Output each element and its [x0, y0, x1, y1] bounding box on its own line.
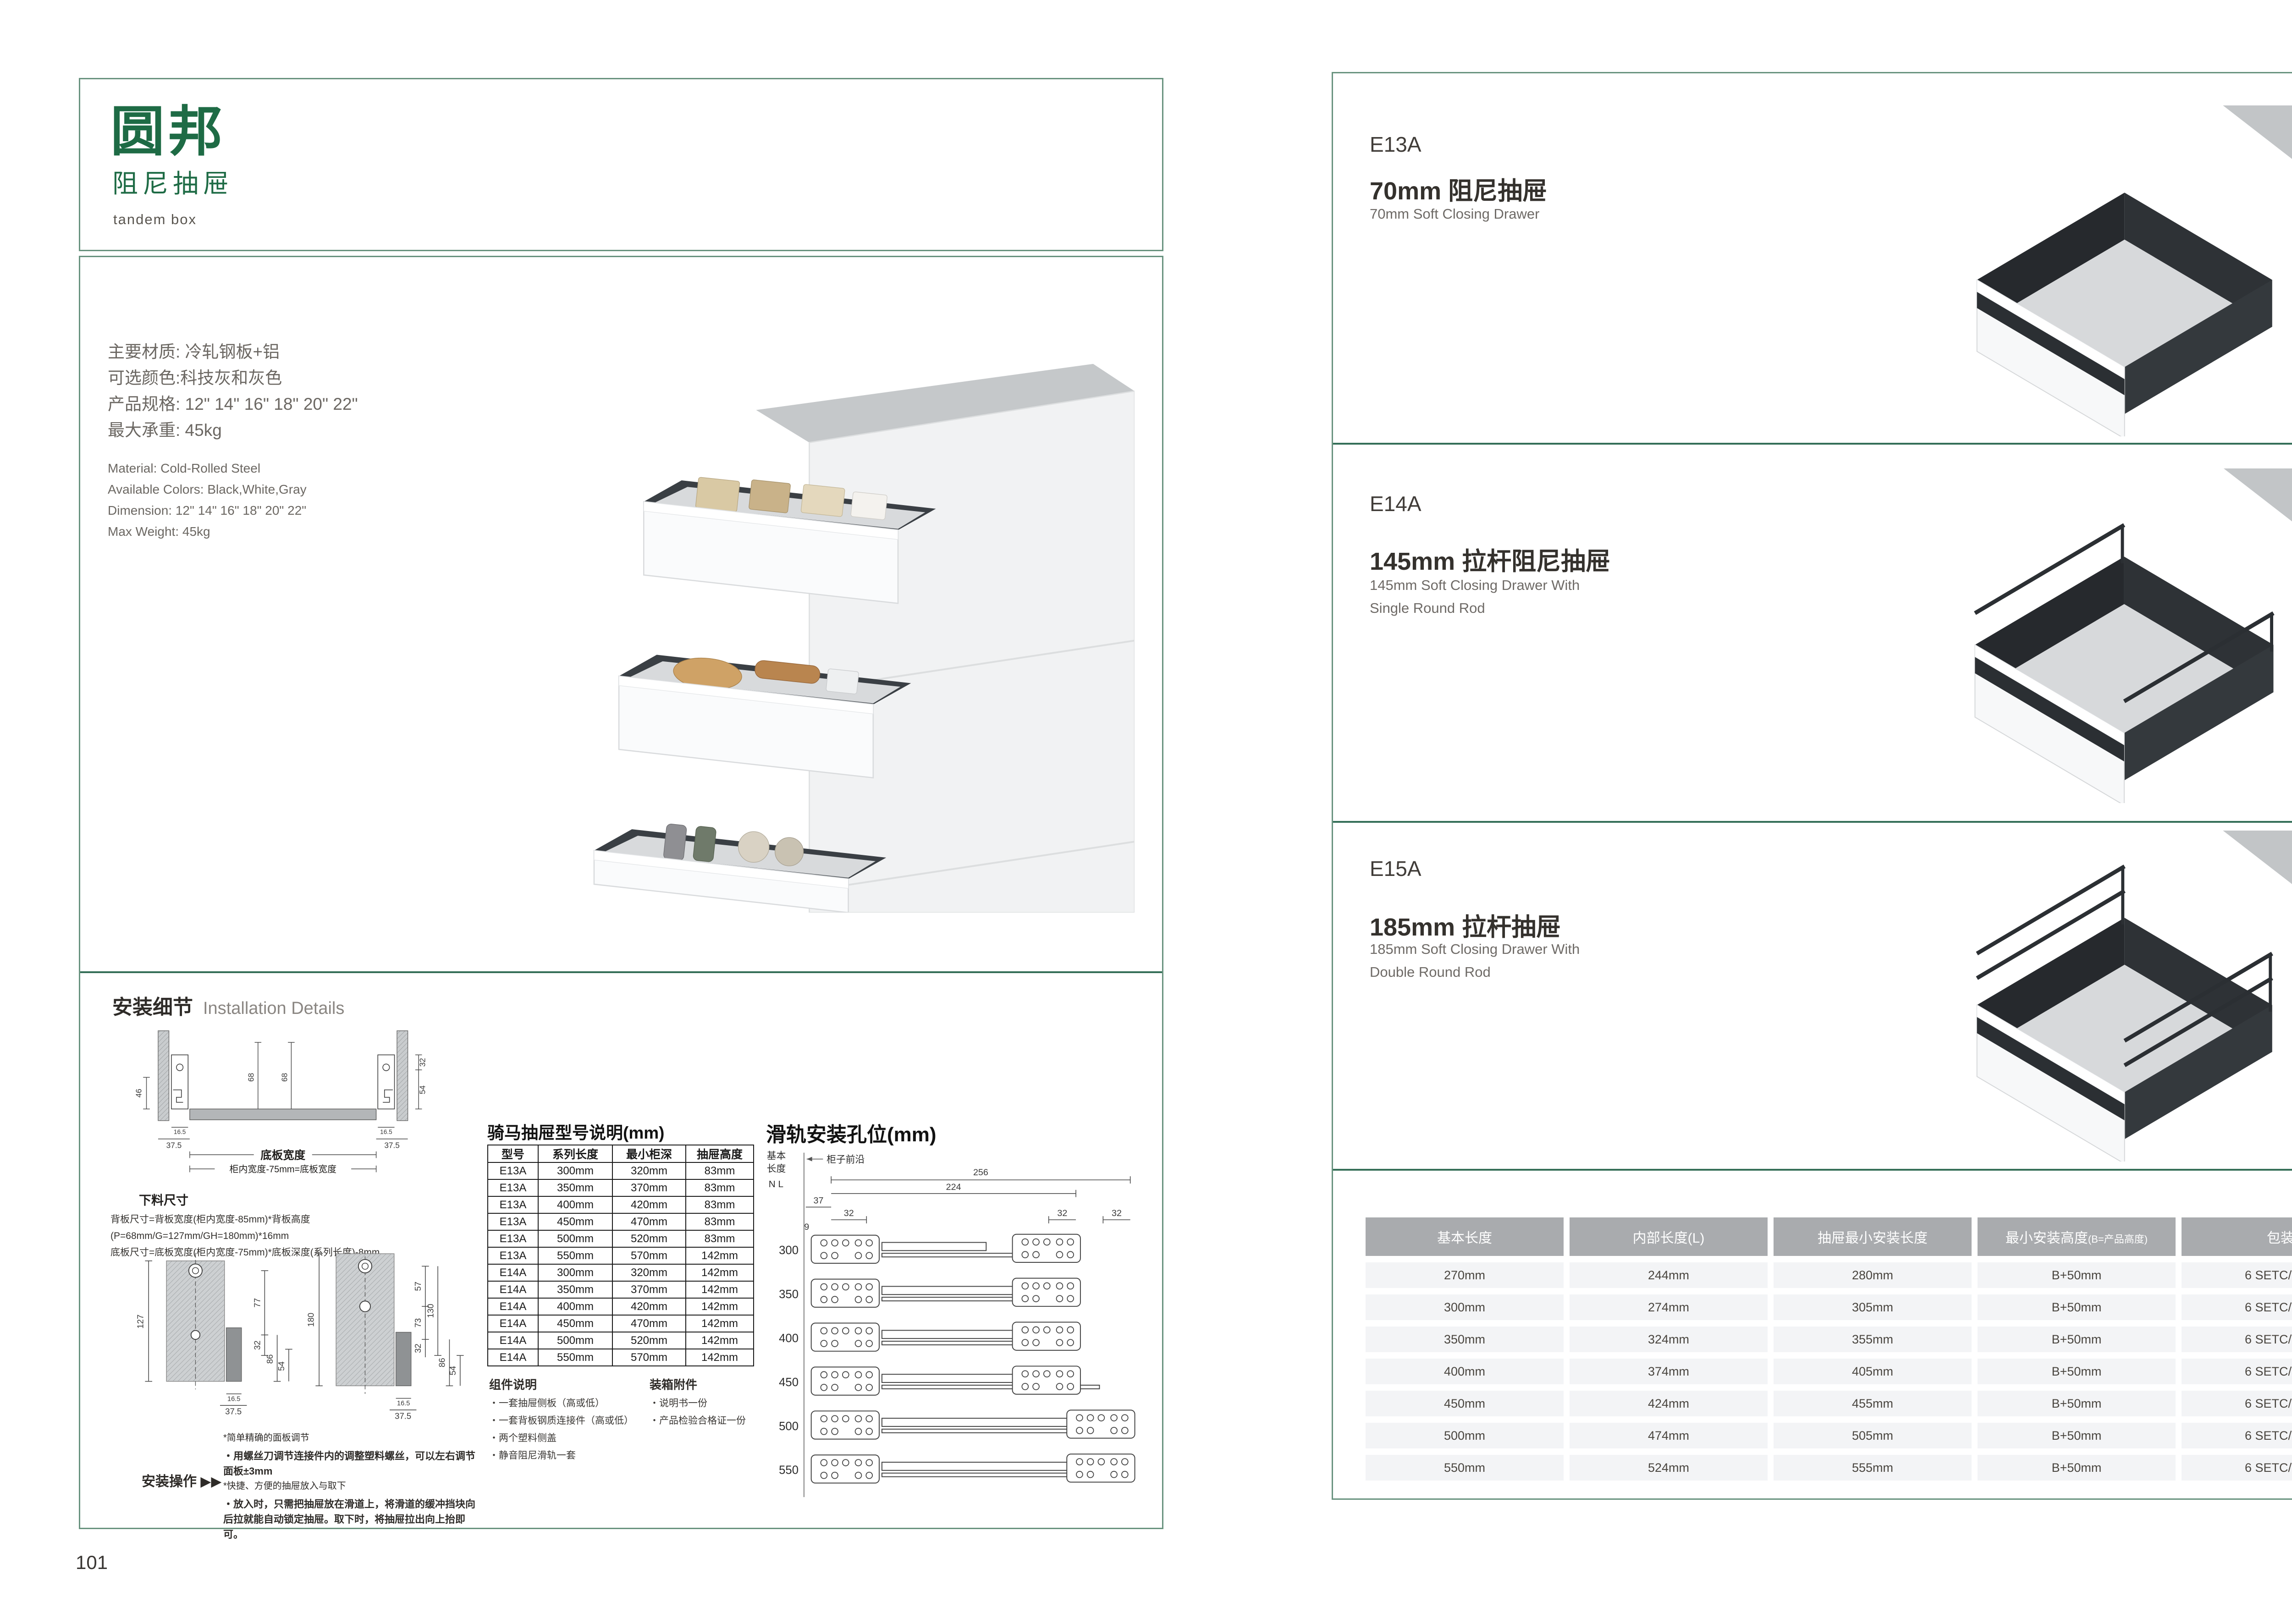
svg-text:400: 400	[779, 1332, 799, 1345]
svg-text:86: 86	[265, 1354, 275, 1364]
svg-text:16.5: 16.5	[380, 1129, 392, 1135]
product-photo	[543, 321, 1135, 913]
brand-logo: 圆邦	[110, 105, 226, 159]
component-item: ・两个塑料侧盖	[489, 1430, 654, 1447]
svg-text:256: 256	[973, 1167, 988, 1178]
svg-text:57: 57	[413, 1282, 423, 1291]
svg-text:350: 350	[779, 1288, 799, 1301]
svg-text:500: 500	[779, 1420, 799, 1433]
svg-text:长度: 长度	[767, 1163, 786, 1174]
svg-text:86: 86	[437, 1358, 447, 1367]
components-list: ・一套抽屉侧板（高或低）・一套背板钢质连接件（高或低）・两个塑料侧盖・静音阻尼滑…	[489, 1395, 654, 1464]
model-table-row: E14A 550mm 570mm 142mm	[488, 1349, 754, 1366]
install-title-cn: 安装细节	[112, 996, 193, 1018]
spec-line: 最大承重: 45kg	[108, 417, 520, 443]
product-image-e14a	[1904, 468, 2292, 803]
svg-text:300: 300	[779, 1244, 799, 1257]
svg-text:32: 32	[253, 1340, 262, 1350]
size-table-row: 450mm 424mm 455mm B+50mm 6 SETC/TNB	[1366, 1391, 2292, 1416]
size-table-header-row: 基本长度 内部长度(L) 抽屉最小安装长度 最小安装高度(B=产品高度) 包装	[1366, 1217, 2292, 1256]
svg-text:130: 130	[425, 1304, 435, 1318]
svg-text:77: 77	[253, 1298, 262, 1308]
spec-line: 产品规格: 12" 14" 16" 18" 20" 22"	[108, 391, 520, 417]
svg-text:16.5: 16.5	[227, 1395, 240, 1403]
operation-bullets: *简单精确的面板调节・用螺丝刀调节连接件内的调整塑料螺丝，可以左右调节面板±3m…	[223, 1431, 480, 1542]
svg-text:37.5: 37.5	[166, 1141, 182, 1150]
svg-text:127: 127	[136, 1315, 145, 1329]
left-content-box: 主要材质: 冷轧钢板+铝可选颜色:科技灰和灰色产品规格: 12" 14" 16"…	[79, 256, 1163, 1529]
operation-bullet: *简单精确的面板调节	[223, 1431, 480, 1446]
svg-text:柜内宽度-75mm=底板宽度: 柜内宽度-75mm=底板宽度	[229, 1164, 336, 1174]
spec-line: 可选颜色:科技灰和灰色	[108, 365, 520, 391]
spec-line: Available Colors: Black,White,Gray	[108, 479, 520, 500]
svg-text:N L: N L	[769, 1179, 783, 1189]
model-table-row: E14A 350mm 370mm 142mm	[488, 1281, 754, 1298]
model-table-row: E14A 300mm 320mm 142mm	[488, 1264, 754, 1281]
svg-text:550: 550	[779, 1464, 799, 1477]
svg-text:32: 32	[844, 1208, 854, 1218]
model-table-row: E14A 400mm 420mm 142mm	[488, 1298, 754, 1315]
page-number-left: 101	[76, 1552, 108, 1574]
product-title-e13a: 70mm 阻尼抽屉	[1370, 171, 1547, 207]
operation-bullet: ・用螺丝刀调节连接件内的调整塑料螺丝，可以左右调节面板±3mm	[223, 1448, 480, 1479]
product-code-e13a: E13A	[1370, 132, 1421, 157]
specs-chinese: 主要材质: 冷轧钢板+铝可选颜色:科技灰和灰色产品规格: 12" 14" 16"…	[108, 339, 520, 443]
svg-text:底板宽度: 底板宽度	[260, 1148, 305, 1162]
model-table-row: E13A 500mm 520mm 83mm	[488, 1230, 754, 1247]
model-table-row: E13A 450mm 470mm 83mm	[488, 1213, 754, 1230]
spec-line: Max Weight: 45kg	[108, 521, 520, 542]
double-arrow-icon: ▶▶	[200, 1474, 221, 1489]
svg-text:224: 224	[946, 1182, 961, 1192]
profile-diagrams: 127 77 32 86 54 16.5 37.5	[135, 1252, 474, 1431]
model-table-row: E13A 350mm 370mm 83mm	[488, 1179, 754, 1196]
size-table-row: 300mm 274mm 305mm B+50mm 6 SETC/TNB	[1366, 1294, 2292, 1320]
product-title-e14a: 145mm 拉杆阻尼抽屉	[1370, 541, 1610, 577]
spec-line: Material: Cold-Rolled Steel	[108, 458, 520, 479]
svg-text:9: 9	[804, 1222, 809, 1232]
separator-1	[1333, 443, 2292, 445]
component-item: ・一套抽屉侧板（高或低）	[489, 1395, 654, 1412]
separator-2	[1333, 821, 2292, 823]
components-title: 组件说明	[489, 1376, 537, 1393]
specs-english: Material: Cold-Rolled SteelAvailable Col…	[108, 458, 520, 542]
svg-text:54: 54	[448, 1366, 457, 1376]
svg-text:54: 54	[418, 1085, 427, 1095]
catalog-spread: 圆邦 阻尼抽屉 tandem box 主要材质: 冷轧钢板+铝可选颜色:科技灰和…	[0, 0, 2292, 1624]
component-item: ・一套背板钢质连接件（高或低）	[489, 1412, 654, 1430]
model-table-row: E13A 550mm 570mm 142mm	[488, 1247, 754, 1264]
product-subtitle-e15a: 185mm Soft Closing Drawer With Double Ro…	[1370, 938, 1782, 984]
svg-text:32: 32	[1112, 1208, 1122, 1218]
product-code-e14a: E14A	[1370, 491, 1421, 516]
model-table: 型号 系列长度 最小柜深 抽屉高度 E13A 300mm 320mm 83mm	[487, 1145, 754, 1366]
svg-text:46: 46	[135, 1089, 143, 1097]
svg-text:450: 450	[779, 1376, 799, 1389]
svg-text:32: 32	[418, 1058, 427, 1067]
product-image-e15a	[1904, 831, 2292, 1162]
size-table-row: 400mm 374mm 405mm B+50mm 6 SETC/TNB	[1366, 1359, 2292, 1384]
model-table-row: E13A 400mm 420mm 83mm	[488, 1196, 754, 1213]
svg-text:68: 68	[280, 1073, 289, 1082]
product-subtitle-e14a: 145mm Soft Closing Drawer With Single Ro…	[1370, 574, 1782, 620]
section-divider	[80, 971, 1162, 973]
cutting-title: 下料尺寸	[139, 1190, 188, 1208]
brand-tagline: tandem box	[113, 211, 197, 228]
svg-text:基本: 基本	[767, 1151, 786, 1162]
rail-hole-diagram: 基本 长度 N L 柜子前沿 256 224 37 9 32 32 32	[759, 1146, 1157, 1502]
product-code-e15a: E15A	[1370, 856, 1421, 881]
operation-label: 安装操作 ▶▶	[142, 1470, 222, 1490]
svg-text:54: 54	[276, 1361, 286, 1371]
packing-title: 装箱附件	[650, 1376, 697, 1393]
product-subtitle-e13a: 70mm Soft Closing Drawer	[1370, 203, 1782, 226]
spec-line: 主要材质: 冷轧钢板+铝	[108, 339, 520, 365]
svg-text:73: 73	[413, 1318, 423, 1328]
install-header: 安装细节Installation Details	[112, 991, 344, 1020]
operation-bullet: ・放入时，只需把抽屉放在滑道上，将滑道的缓冲挡块向后拉就能自动锁定抽屉。取下时，…	[223, 1497, 480, 1542]
model-table-title: 骑马抽屉型号说明(mm)	[487, 1119, 664, 1144]
svg-text:180: 180	[306, 1313, 315, 1327]
svg-text:37: 37	[814, 1196, 824, 1206]
svg-text:32: 32	[1057, 1208, 1067, 1218]
product-image-e13a	[1904, 105, 2292, 436]
separator-3	[1333, 1169, 2292, 1171]
operation-bullet: *快捷、方便的抽屉放入与取下	[223, 1479, 480, 1494]
spec-line: Dimension: 12" 14" 16" 18" 20" 22"	[108, 500, 520, 521]
model-table-header-row: 型号 系列长度 最小柜深 抽屉高度	[488, 1145, 754, 1162]
size-table-row: 550mm 524mm 555mm B+50mm 6 SETC/TNB	[1366, 1455, 2292, 1481]
size-table-row: 270mm 244mm 280mm B+50mm 6 SETC/TNB	[1366, 1262, 2292, 1288]
size-table: 基本长度 内部长度(L) 抽屉最小安装长度 最小安装高度(B=产品高度) 包装 …	[1360, 1211, 2292, 1487]
size-table-row: 500mm 474mm 505mm B+50mm 6 SETC/TNB	[1366, 1423, 2292, 1448]
model-table-row: E14A 450mm 470mm 142mm	[488, 1315, 754, 1332]
component-item: ・静音阻尼滑轨一套	[489, 1447, 654, 1464]
model-table-row: E13A 300mm 320mm 83mm	[488, 1162, 754, 1179]
svg-text:37.5: 37.5	[395, 1411, 411, 1420]
svg-text:68: 68	[247, 1073, 256, 1082]
logo-box: 圆邦 阻尼抽屉 tandem box	[79, 78, 1163, 251]
model-table-row: E14A 500mm 520mm 142mm	[488, 1332, 754, 1349]
brand-subtitle: 阻尼抽屉	[112, 171, 233, 197]
svg-text:16.5: 16.5	[397, 1400, 410, 1407]
svg-text:16.5: 16.5	[174, 1129, 186, 1135]
svg-text:32: 32	[413, 1343, 423, 1353]
svg-text:37.5: 37.5	[384, 1141, 400, 1150]
svg-text:柜子前沿: 柜子前沿	[826, 1155, 865, 1165]
install-title-en: Installation Details	[203, 999, 344, 1018]
rail-diagram-title: 滑轨安装孔位(mm)	[766, 1118, 937, 1147]
right-content-box: E13A 70mm 阻尼抽屉 70mm Soft Closing Drawer …	[1332, 72, 2292, 1500]
cross-section-diagram: 68 68 46 32 54 16.5 37.5 16.5 37.5 底板宽度 …	[135, 1027, 429, 1181]
formula-line: 背板尺寸=背板宽度(柜内宽度-85mm)*背板高度(P=68mm/G=127mm…	[110, 1211, 486, 1244]
size-table-row: 350mm 324mm 355mm B+50mm 6 SETC/TNB	[1366, 1327, 2292, 1352]
svg-text:37.5: 37.5	[225, 1407, 242, 1416]
